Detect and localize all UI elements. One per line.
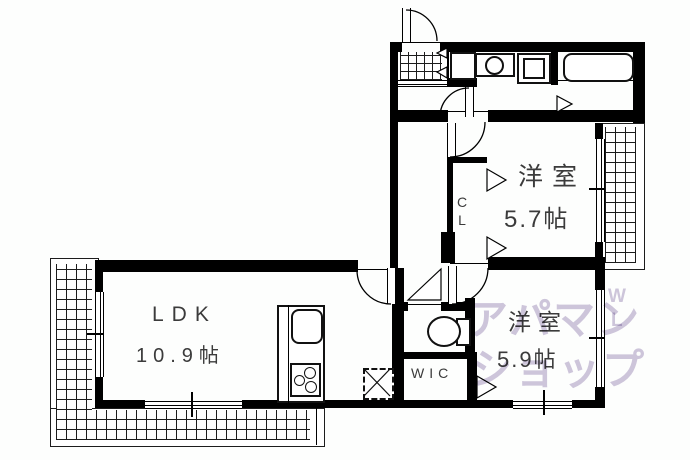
watermark-mark-top: W xyxy=(608,286,628,308)
room-label-wic: WIC xyxy=(411,365,453,381)
kitchen-counter-divider xyxy=(288,305,289,403)
room-label-bedroom1: 洋室 xyxy=(518,157,586,193)
wall xyxy=(392,110,448,122)
window xyxy=(596,139,605,242)
balcony-hatch-icon xyxy=(605,127,636,263)
toilet-icon xyxy=(427,316,461,347)
tile-floor-icon xyxy=(400,52,442,80)
door-opening-line xyxy=(408,304,441,305)
balcony-hatch-icon xyxy=(56,410,310,440)
balcony-end-line xyxy=(316,408,317,445)
bedroom2-door-leaf xyxy=(448,266,457,304)
bedroom1-door-leaf xyxy=(447,123,456,157)
wall xyxy=(595,123,603,139)
door-opening-line xyxy=(402,42,440,43)
wall xyxy=(447,50,449,80)
window-sliding-door xyxy=(145,401,242,409)
wall xyxy=(390,42,398,272)
kitchen-sink-icon xyxy=(291,309,323,344)
washroom-door-leaf xyxy=(465,87,474,117)
washbasin-bowl xyxy=(485,56,504,75)
bathtub-icon xyxy=(563,53,634,82)
wall xyxy=(95,262,103,292)
wall xyxy=(595,242,603,257)
wall xyxy=(95,260,358,272)
wall xyxy=(441,232,455,263)
entrance-door-leaf xyxy=(402,8,411,42)
wall xyxy=(488,257,605,270)
watermark-mark-bottom: L xyxy=(611,310,625,332)
wall xyxy=(447,157,487,163)
room-area-bedroom1: 5.7帖 xyxy=(504,199,569,234)
toilet-door-triangle xyxy=(408,269,441,300)
stove-burner xyxy=(294,375,305,386)
floor-plan-canvas: LDK 10.9帖 洋室 5.7帖 洋室 5.9帖 CL WIC アパマン W … xyxy=(0,0,690,460)
wall xyxy=(95,400,145,408)
wall xyxy=(440,42,645,52)
wall xyxy=(398,302,408,311)
wall xyxy=(488,110,645,122)
stove-burner xyxy=(304,367,316,379)
closet-folding-door-triangle xyxy=(487,169,506,191)
window-tick xyxy=(191,392,193,417)
shoe-cabinet-icon xyxy=(450,52,476,80)
ldk-door-leaf xyxy=(387,268,396,304)
room-area-ldk: 10.9帖 xyxy=(136,339,225,368)
watermark-text-bottom: ショップ xyxy=(470,336,646,397)
closet-folding-door-triangle xyxy=(487,237,506,259)
refrigerator-space-icon xyxy=(363,368,394,400)
room-label-ldk: LDK xyxy=(152,303,217,327)
window-tick xyxy=(87,333,103,335)
door-opening-line xyxy=(450,263,488,264)
wall xyxy=(572,400,605,408)
window-tick xyxy=(589,188,604,190)
wall xyxy=(398,352,477,359)
room-label-closet: CL xyxy=(454,194,470,230)
ldk-door-arc xyxy=(357,270,391,304)
washing-machine-drum xyxy=(523,58,545,79)
genkan-step-edge xyxy=(398,80,447,87)
stove-burner xyxy=(305,381,317,393)
